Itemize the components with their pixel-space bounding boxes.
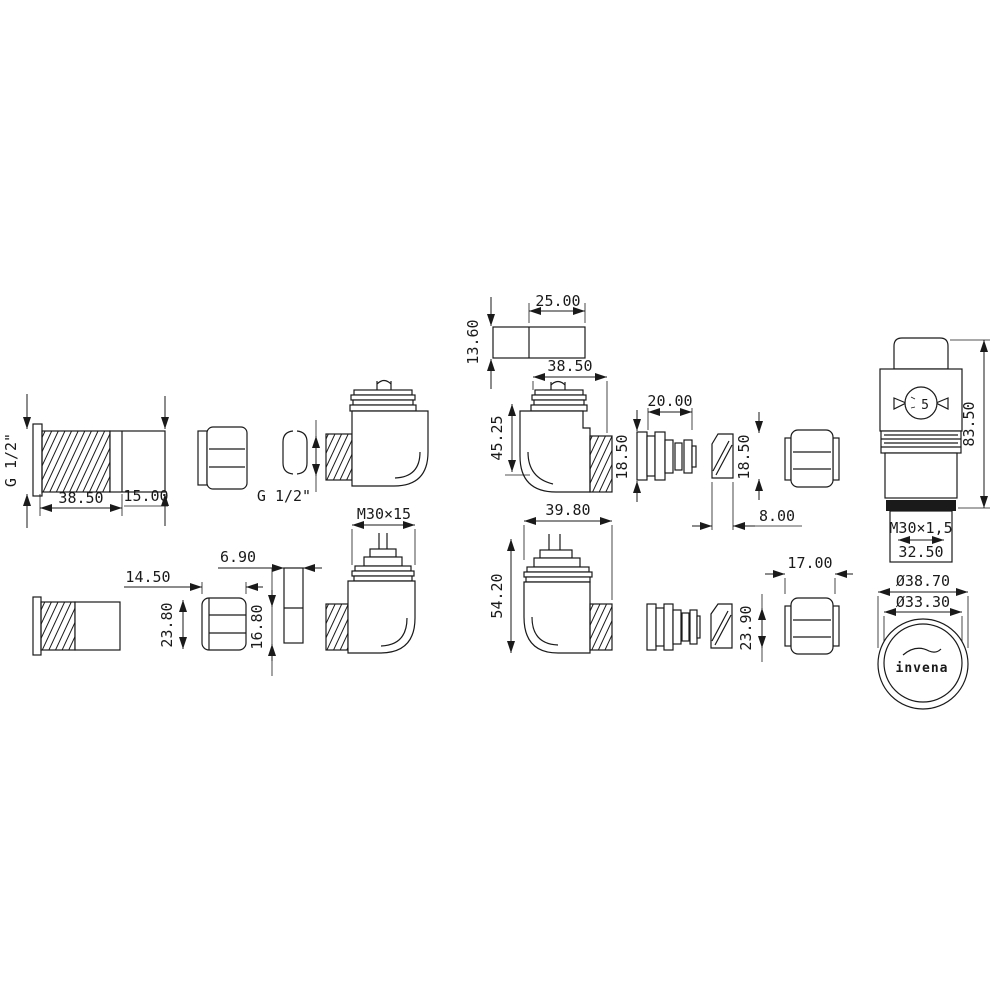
split-olive-row1-drawing — [712, 434, 733, 478]
dim-head-height: 83.50 — [960, 401, 978, 446]
tailpiece-row2-drawing — [33, 597, 120, 655]
head-seal-band — [886, 500, 956, 511]
compression-nut-row1-drawing — [198, 427, 247, 489]
dim-olive-height: 18.50 — [735, 434, 753, 479]
valve-set-technical-drawing: G 1/2" 38.50 15.00 G 1/2" — [0, 0, 1000, 1000]
dim-valve-width: 39.80 — [545, 501, 590, 519]
dim-pipe-od: 15.00 — [123, 487, 168, 505]
dim-valve-height: 54.20 — [488, 573, 506, 618]
barb-fitting-row2-drawing — [647, 604, 700, 650]
dim-nut-height: 23.80 — [158, 602, 176, 647]
elbow-body-row1-left-drawing — [326, 381, 428, 487]
thermostatic-head-front-drawing: 5 M30×1,5 32.50 — [880, 338, 962, 562]
dim-olive2-height: 23.90 — [737, 605, 755, 650]
dim-top-width: 25.00 — [535, 292, 580, 310]
olive-ring-row1-drawing — [283, 431, 307, 474]
thermostatic-head-bottom-view-drawing: invena — [878, 619, 968, 709]
dim-tailpiece-length: 38.50 — [58, 489, 103, 507]
thread-label-tailpiece: G 1/2" — [2, 433, 20, 487]
dim-olive-width: 8.00 — [759, 507, 795, 525]
compression-nut-row2-drawing — [202, 598, 246, 650]
head-thread-label: M30×1,5 — [889, 519, 952, 537]
dial-setting-number: 5 — [921, 398, 929, 413]
elbow-valve-row2-left-drawing — [326, 533, 415, 653]
elbow-valve-row2-middle-drawing — [524, 534, 612, 653]
split-olive-row2-drawing — [711, 604, 732, 648]
dim-nut2-width: 17.00 — [787, 554, 832, 572]
technical-drawing-page: G 1/2" 38.50 15.00 G 1/2" — [0, 0, 1000, 1000]
dim-elbow-width: 38.50 — [547, 357, 592, 375]
dim-elbow-height: 45.25 — [488, 415, 506, 460]
thread-label-elbow: G 1/2" — [257, 487, 311, 505]
pipe-insert-drawing — [284, 568, 303, 643]
dim-head-collar-width: 32.50 — [898, 543, 943, 561]
barb-fitting-row1-drawing — [637, 432, 696, 480]
dim-barb-height: 18.50 — [613, 434, 631, 479]
dim-head-inner-diameter: Ø33.30 — [896, 593, 950, 611]
dim-nut-width: 14.50 — [125, 568, 170, 586]
elbow-body-row1-middle-drawing — [520, 382, 612, 493]
tailpiece-row1-drawing — [33, 424, 165, 496]
dim-insert-height: 16.80 — [248, 604, 266, 649]
dim-barb-width: 20.00 — [647, 392, 692, 410]
top-view-block-drawing — [493, 327, 585, 358]
dim-insert-width: 6.90 — [220, 548, 256, 566]
compression-nut-row1-right-drawing — [785, 430, 839, 487]
dim-top-height: 13.60 — [464, 319, 482, 364]
dim-head-outer-diameter: Ø38.70 — [896, 572, 950, 590]
valve-thread-label: M30×15 — [357, 505, 411, 523]
compression-nut-row2-right-drawing — [785, 598, 839, 654]
brand-logo: invena — [896, 661, 949, 676]
